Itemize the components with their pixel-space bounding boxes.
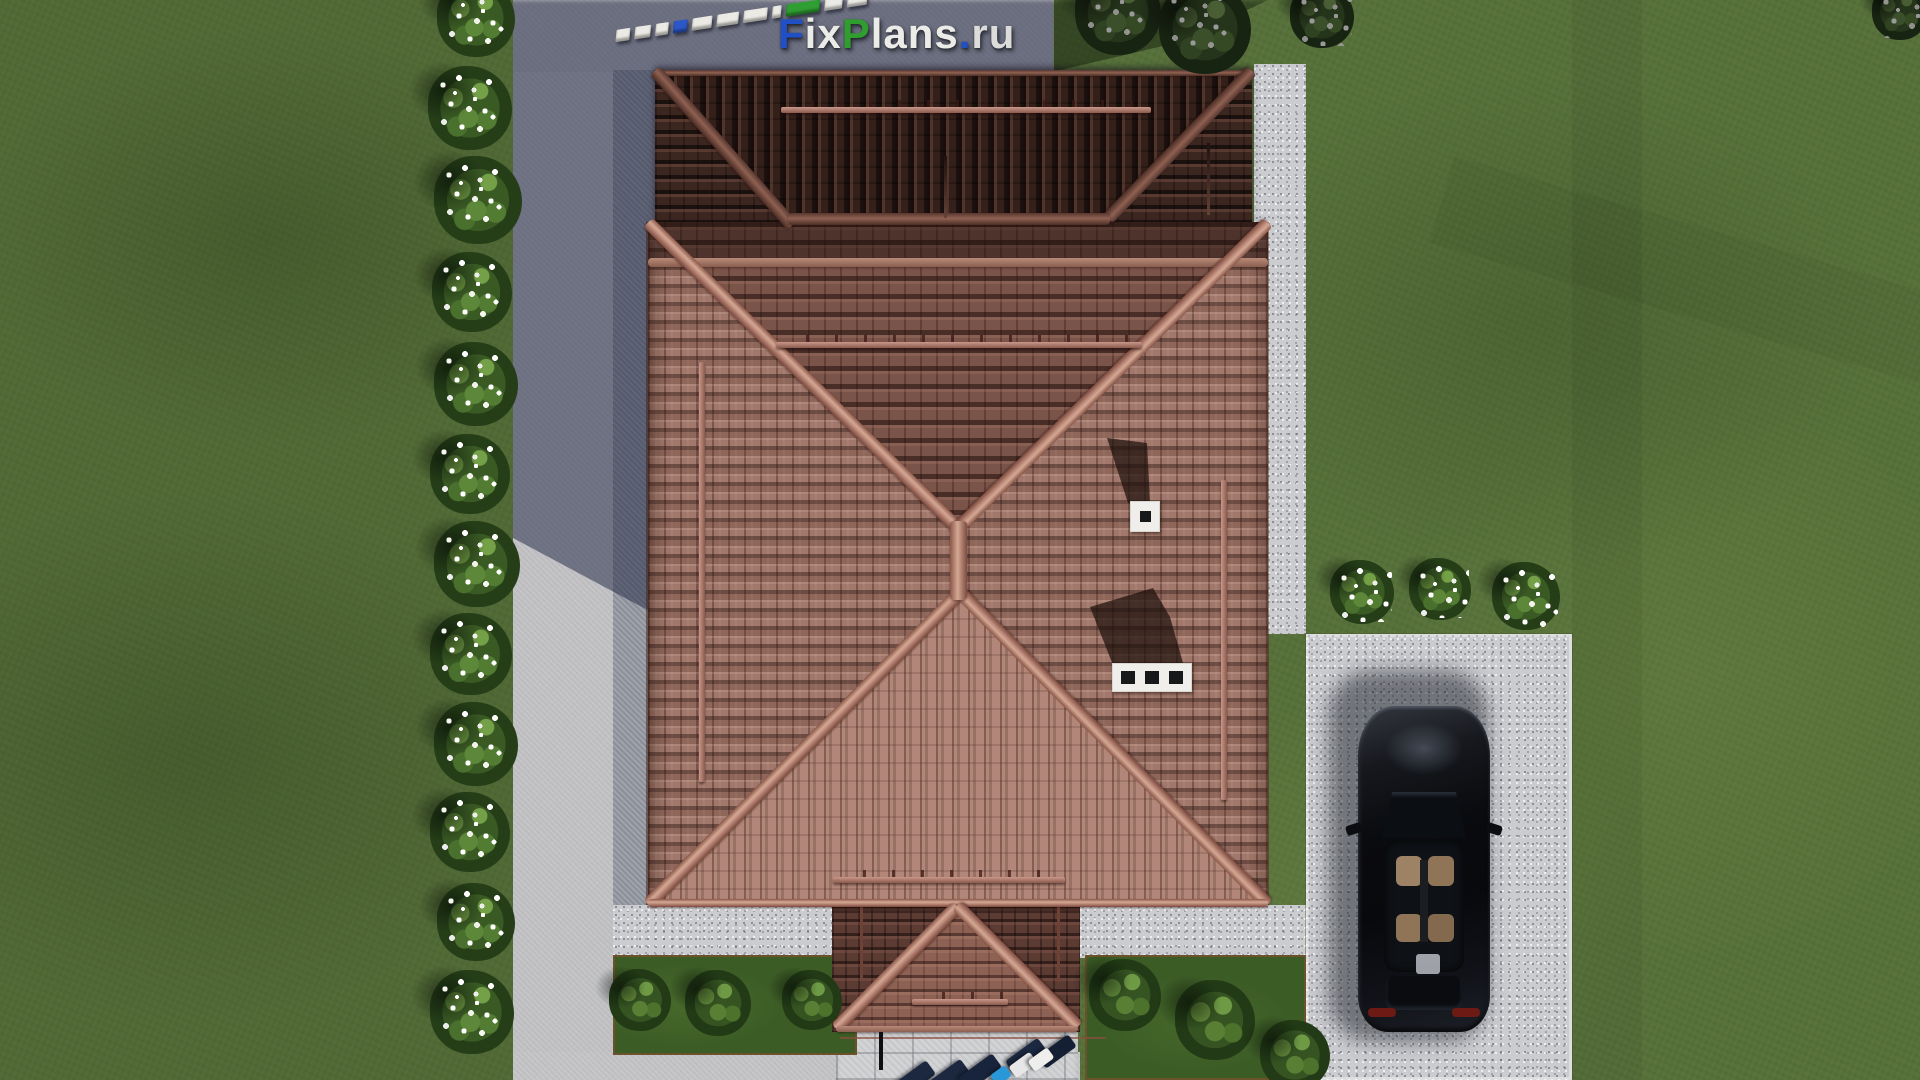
watermark-letter: x [817,10,841,57]
watermark-letter: a [883,10,907,57]
watermark-letter: r [971,10,988,57]
watermark-letter: P [842,10,871,57]
flowering-shrub [430,613,512,695]
main-ridge-cap [950,521,967,600]
snow-guard-east [1221,480,1227,800]
watermark-letter: n [908,10,935,57]
flowering-shrub [1330,560,1394,624]
flowering-shrub [434,156,522,244]
flowering-shrub-in-shadow [1290,0,1354,48]
flowering-shrub [1409,558,1471,620]
watermark-letter: l [871,10,884,57]
car-windshield [1374,792,1474,838]
green-shrub [782,970,842,1030]
car-console [1420,860,1428,942]
flowering-shrub [437,0,515,57]
watermark-logo: FixPlans.ru [778,10,1015,58]
flowering-shrub [434,702,518,786]
car-taillight-left [1368,1008,1396,1017]
car [1358,706,1490,1032]
roof-antenna [1207,143,1210,215]
ruler-segment-white [615,28,630,42]
car-rear-window [1386,976,1462,1010]
watermark-letter: i [805,10,818,57]
ruler-segment-white [634,25,651,40]
snow-guard-north [776,342,1142,348]
ruler-segment-blue [673,19,688,33]
roof-antenna [944,156,947,218]
porch-gutter-right [1057,905,1060,982]
chimney-large [1112,663,1192,692]
roof-west-drip-edge [646,222,649,905]
snow-guard-west [699,362,705,782]
watermark-letter: s [934,10,958,57]
flowering-shrub [437,883,515,961]
car-seat [1396,856,1422,886]
roof-east-drip-edge [1266,222,1269,905]
flowering-shrub [434,342,518,426]
car-seat [1428,914,1454,942]
snow-guard-south [833,877,1065,883]
flowering-shrub-in-shadow [1159,0,1251,74]
porch-roof-front-slope [832,905,1080,1032]
roof-junction-cap [648,258,1268,267]
chimney-small [1130,501,1160,532]
flowering-shrub [432,252,512,332]
flowering-shrub [430,434,510,514]
mowing-stripe [1572,0,1642,1080]
watermark-letter: . [959,10,972,57]
car-hood-shine [1372,714,1476,784]
snow-guard-garage [781,107,1151,113]
aerial-site-render: FixPlans.ru [0,0,1920,1080]
flowering-shrub [434,521,520,607]
watermark-letter: F [778,10,805,57]
garage-ridge-cap [788,213,1110,225]
ruler-segment-white [655,22,669,36]
car-taillight-right [1452,1008,1480,1017]
porch-roof [832,905,1080,1032]
gravel-apron-south-left [613,905,832,958]
car-seat [1396,914,1422,942]
flowering-shrub [1492,562,1560,630]
terrace-post [879,1032,883,1070]
car-seat [1428,856,1454,886]
snow-guard-porch [912,999,1008,1005]
flowering-shrub [430,970,514,1054]
flowering-shrub-in-shadow [1872,0,1920,40]
car-trunk-panel [1416,954,1440,974]
car-roof-glass [1384,840,1464,972]
porch-eave-cap [836,1026,1078,1032]
flowering-shrub [430,792,510,872]
mowing-stripe [1430,156,1920,413]
watermark-letter: u [989,10,1016,57]
green-shrub [685,970,751,1036]
porch-gutter-left [860,905,863,979]
